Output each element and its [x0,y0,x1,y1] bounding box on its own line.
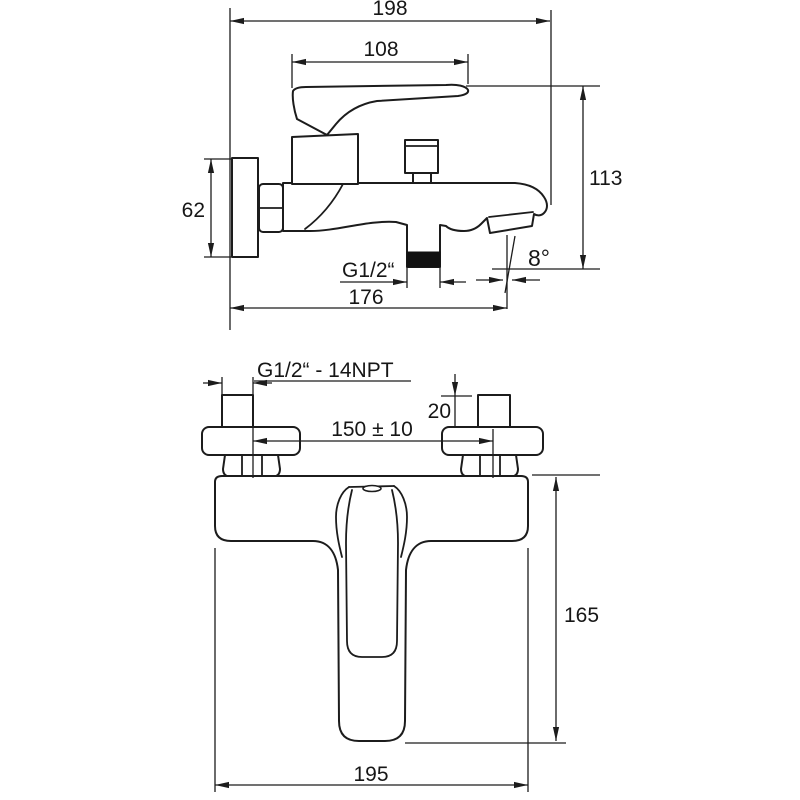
inlet-nipple-right [478,395,510,427]
dim-label-length-aerator: 176 [348,286,383,309]
dim-label-inlet-spacing: 150 ± 10 [331,418,413,441]
handle-end-cap [363,486,381,492]
diverter-knob-stem [413,173,431,183]
wall-plate [232,158,258,257]
dim-label-plate-height: 62 [182,199,205,222]
hex-nut-front-right [461,455,518,477]
technical-drawing: 198 108 113 62 176 G1/2“ 8° [0,0,800,800]
dim-label-body-height: 165 [564,604,599,627]
cartridge-collar [292,134,358,184]
diverter-knob [405,140,438,173]
dim-label-total-height: 113 [589,167,622,190]
dim-label-inlet-thread: G1/2“ - 14NPT [257,359,394,382]
front-view: G1/2“ - 14NPT 20 150 ± 10 165 195 [202,359,600,792]
dim-label-body-width: 195 [353,763,388,786]
drawing-canvas: 198 108 113 62 176 G1/2“ 8° [0,0,800,800]
dim-label-handle-length: 108 [363,38,398,61]
hex-nut-front-left [223,455,280,477]
side-view: 198 108 113 62 176 G1/2“ 8° [182,0,623,330]
dim-label-total-length: 198 [372,0,407,20]
dim-label-projection: 20 [428,400,451,423]
shower-outlet-thread [407,252,440,267]
dim-label-outlet-thread: G1/2“ [342,259,395,282]
handle-lever-side [293,85,468,135]
dim-label-spout-angle: 8° [528,245,550,271]
inlet-nipple-left [222,395,253,427]
